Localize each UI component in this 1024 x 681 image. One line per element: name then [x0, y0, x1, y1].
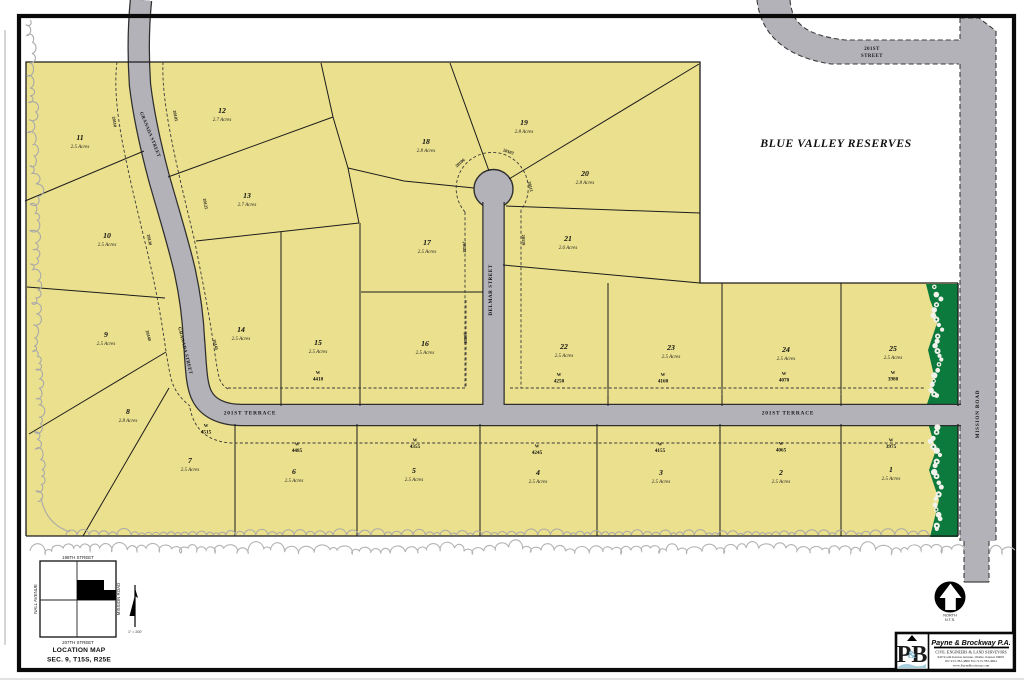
svg-text:17: 17 — [423, 238, 432, 247]
svg-text:14: 14 — [237, 325, 245, 334]
svg-text:www.PayneBrockway.com: www.PayneBrockway.com — [953, 664, 990, 668]
svg-text:10: 10 — [103, 231, 111, 240]
svg-text:2.5 Acres: 2.5 Acres — [418, 250, 437, 255]
svg-text:Payne & Brockway P.A.: Payne & Brockway P.A. — [931, 638, 1010, 647]
svg-text:2.8 Acres: 2.8 Acres — [417, 149, 436, 154]
svg-text:W: W — [204, 423, 209, 428]
svg-text:6: 6 — [292, 467, 296, 476]
svg-text:18: 18 — [422, 137, 430, 146]
svg-text:2.5 Acres: 2.5 Acres — [71, 145, 90, 150]
svg-text:2.5 Acres: 2.5 Acres — [98, 243, 117, 248]
svg-text:W: W — [782, 371, 787, 376]
svg-text:2.8 Acres: 2.8 Acres — [576, 181, 595, 186]
svg-text:N.T.S.: N.T.S. — [945, 618, 955, 622]
svg-text:MISSION ROAD: MISSION ROAD — [116, 583, 121, 615]
svg-text:13: 13 — [243, 191, 251, 200]
svg-text:2.5 Acres: 2.5 Acres — [884, 356, 903, 361]
svg-text:2.7 Acres: 2.7 Acres — [213, 118, 232, 123]
svg-text:2.5 Acres: 2.5 Acres — [882, 477, 901, 482]
svg-text:2.5 Acres: 2.5 Acres — [529, 480, 548, 485]
svg-text:20119: 20119 — [521, 234, 526, 246]
svg-text:W: W — [661, 372, 666, 377]
svg-text:2.5 Acres: 2.5 Acres — [662, 355, 681, 360]
svg-text:W: W — [557, 372, 562, 377]
svg-text:2.5 Acres: 2.5 Acres — [777, 357, 796, 362]
svg-text:207TH STREET: 207TH STREET — [62, 640, 94, 645]
svg-text:W: W — [779, 441, 784, 446]
svg-text:11: 11 — [76, 133, 83, 142]
svg-text:W: W — [535, 444, 540, 449]
svg-text:W: W — [316, 370, 321, 375]
svg-text:2.5 Acres: 2.5 Acres — [232, 337, 251, 342]
svg-text:4245: 4245 — [532, 450, 543, 456]
svg-text:4485: 4485 — [292, 448, 303, 454]
svg-text:2: 2 — [778, 468, 783, 477]
svg-text:2.5 Acres: 2.5 Acres — [405, 478, 424, 483]
svg-text:W: W — [295, 442, 300, 447]
svg-text:3: 3 — [658, 468, 663, 477]
svg-text:2.6 Acres: 2.6 Acres — [559, 246, 578, 251]
svg-text:1: 1 — [889, 465, 893, 474]
svg-text:19: 19 — [520, 118, 528, 127]
svg-text:201ST TERRACE: 201ST TERRACE — [762, 411, 815, 417]
svg-text:20: 20 — [580, 169, 589, 178]
svg-text:MISSION ROAD: MISSION ROAD — [975, 390, 981, 439]
svg-text:4070: 4070 — [779, 378, 790, 384]
svg-text:201ST: 201ST — [864, 47, 880, 52]
svg-text:BLUE VALLEY RESERVES: BLUE VALLEY RESERVES — [759, 136, 911, 150]
svg-text:NALL AVENUE: NALL AVENUE — [33, 584, 38, 614]
svg-text:8: 8 — [126, 407, 130, 416]
svg-text:2.5 Acres: 2.5 Acres — [555, 354, 574, 359]
svg-text:25: 25 — [888, 344, 897, 353]
svg-text:W: W — [413, 438, 418, 443]
svg-text:12: 12 — [218, 106, 226, 115]
svg-text:2.7 Acres: 2.7 Acres — [238, 203, 257, 208]
svg-text:4410: 4410 — [313, 377, 324, 383]
svg-text:LOCATION MAP: LOCATION MAP — [53, 647, 106, 654]
svg-text:DELMAR STREET: DELMAR STREET — [488, 264, 494, 315]
svg-text:4355: 4355 — [410, 444, 421, 450]
svg-text:2.8 Acres: 2.8 Acres — [119, 419, 138, 424]
svg-text:NORTH: NORTH — [943, 614, 957, 618]
svg-text:22: 22 — [559, 342, 568, 351]
svg-text:2.5 Acres: 2.5 Acres — [97, 342, 116, 347]
svg-text:16: 16 — [421, 339, 429, 348]
svg-text:21: 21 — [563, 234, 572, 243]
svg-text:3980: 3980 — [888, 377, 899, 383]
svg-text:SEC. 9, T15S, R25E: SEC. 9, T15S, R25E — [47, 657, 111, 664]
svg-text:2.5 Acres: 2.5 Acres — [416, 351, 435, 356]
svg-text:W: W — [889, 438, 894, 443]
svg-text:4: 4 — [535, 468, 540, 477]
svg-text:5: 5 — [412, 466, 416, 475]
svg-text:4250: 4250 — [554, 379, 565, 385]
svg-text:20158: 20158 — [463, 332, 468, 344]
svg-text:3975: 3975 — [886, 444, 897, 450]
svg-text:4160: 4160 — [658, 379, 669, 385]
svg-text:23: 23 — [666, 343, 675, 352]
svg-text:W: W — [658, 442, 663, 447]
svg-text:4515: 4515 — [201, 430, 212, 436]
svg-text:2.5 Acres: 2.5 Acres — [309, 350, 328, 355]
svg-text:CIVIL ENGINEERS & LAND SURVEYO: CIVIL ENGINEERS & LAND SURVEYORS — [935, 650, 1006, 655]
svg-text:4065: 4065 — [776, 448, 787, 454]
svg-text:Ph: 913-782-4800 Fax: 913-782: Ph: 913-782-4800 Fax: 913-782-4664 — [945, 659, 997, 663]
svg-text:2.8 Acres: 2.8 Acres — [515, 130, 534, 135]
svg-text:15: 15 — [314, 338, 322, 347]
svg-text:20122: 20122 — [462, 241, 467, 252]
svg-text:24: 24 — [781, 345, 790, 354]
svg-text:&: & — [907, 649, 916, 661]
svg-text:2.5 Acres: 2.5 Acres — [652, 480, 671, 485]
svg-text:W: W — [891, 370, 896, 375]
svg-text:STREET: STREET — [861, 54, 883, 59]
svg-text:201ST TERRACE: 201ST TERRACE — [224, 411, 277, 417]
svg-text:2.5 Acres: 2.5 Acres — [772, 480, 791, 485]
svg-text:4155: 4155 — [655, 448, 666, 454]
svg-text:9: 9 — [104, 330, 108, 339]
svg-text:198TH STREET: 198TH STREET — [62, 555, 94, 560]
svg-text:2.5 Acres: 2.5 Acres — [181, 468, 200, 473]
svg-text:2.5 Acres: 2.5 Acres — [285, 479, 304, 484]
svg-text:1" = 200': 1" = 200' — [128, 630, 142, 634]
